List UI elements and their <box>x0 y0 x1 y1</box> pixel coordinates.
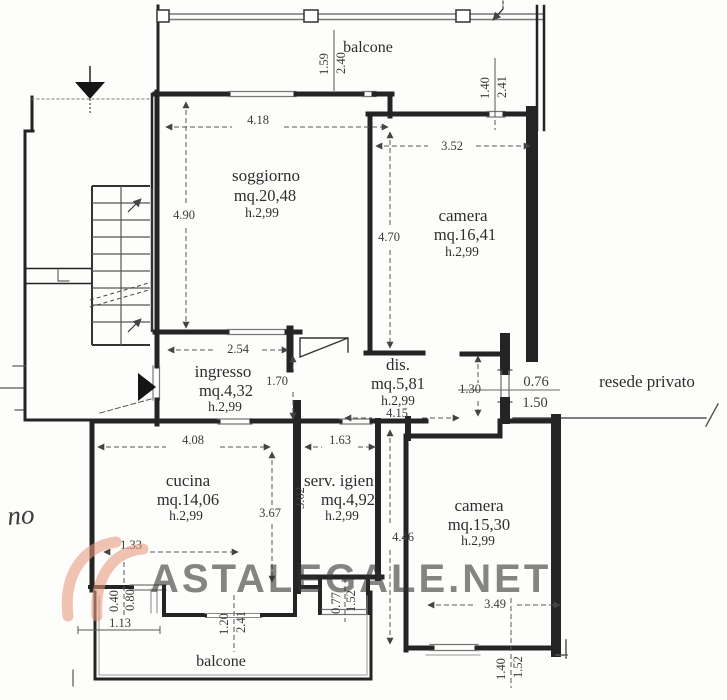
dim-serv-width: 1.63 <box>329 433 351 447</box>
dim-soggiorno-width: 4.18 <box>247 113 269 127</box>
margin-note: no <box>6 499 35 531</box>
dim-fin-camera-sud-depth: 1.52 <box>511 656 525 678</box>
resede-privato-label: resede privato <box>599 372 695 391</box>
dim-finestra-ne-depth: 2.41 <box>495 76 509 98</box>
room-label-camera-nord: camera <box>438 206 488 225</box>
watermark: ASTALEGALE.NET <box>67 542 551 616</box>
balcone-sud-label: balcone <box>196 653 246 670</box>
room-area-cucina: mq.14,06 <box>157 490 219 509</box>
room-label-camera-sud: camera <box>454 496 504 515</box>
north-arrow-icon <box>75 66 105 113</box>
dim-finestra-ne-width: 1.40 <box>478 77 492 99</box>
staircase <box>90 186 152 345</box>
dim-porta-balcone-width: 1.20 <box>217 613 231 635</box>
dim-fin-cucina-depth: 0.80 <box>123 589 137 611</box>
room-label-cucina: cucina <box>166 471 211 490</box>
dim-camera-nord-depth: 4.70 <box>378 230 400 244</box>
balcone-top-label: balcone <box>343 39 393 56</box>
room-area-dis: mq.5,81 <box>371 374 425 393</box>
dim-camera-sud-depth: 4.46 <box>392 530 414 544</box>
room-label-serv-igien: serv. igien. <box>304 471 378 490</box>
dim-porta-resede-depth: 1.50 <box>522 395 547 411</box>
dim-serv-depth: 3.02 <box>293 487 307 509</box>
dim-ingresso-width: 2.54 <box>227 342 250 356</box>
room-label-dis: dis. <box>386 355 410 374</box>
room-label-ingresso: ingresso <box>195 362 252 381</box>
room-area-soggiorno: mq.20,48 <box>234 186 296 205</box>
room-height-camera-nord: h.2,99 <box>445 244 479 259</box>
dim-porta-resede-width: 0.76 <box>523 374 548 390</box>
room-label-soggiorno: soggiorno <box>232 166 300 185</box>
dim-balcone-top-width: 1.59 <box>317 53 331 75</box>
room-height-soggiorno: h.2,99 <box>245 205 279 220</box>
room-area-serv-igien: mq.4,92 <box>321 490 375 509</box>
watermark-text: ASTALEGALE.NET <box>150 557 551 601</box>
dim-soggiorno-depth: 4.90 <box>173 208 195 222</box>
room-height-camera-sud: h.2,99 <box>461 533 495 548</box>
room-area-camera-sud: mq.15,30 <box>448 515 510 534</box>
floor-plan-svg: balcone balcone resede privato soggiorno… <box>0 0 727 700</box>
dim-passage-depth: 1.30 <box>459 382 481 396</box>
room-area-camera-nord: mq.16,41 <box>434 225 496 244</box>
room-height-serv-igien: h.2,99 <box>325 508 359 523</box>
dim-cucina-width: 4.08 <box>182 433 204 447</box>
dim-dis-length: 4.15 <box>386 406 408 420</box>
dim-fin-cucina-width: 0.40 <box>107 590 121 612</box>
dim-fin-camera-sud-width: 1.40 <box>494 658 508 680</box>
dim-davanzale: 1.13 <box>109 616 131 630</box>
dim-ingresso-depth: 1.70 <box>266 374 288 388</box>
room-height-cucina: h.2,99 <box>169 508 203 523</box>
room-height-ingresso: h.2,99 <box>208 399 242 414</box>
dim-balcone-top-depth: 2.40 <box>334 52 348 74</box>
floor-plan-scan: balcone balcone resede privato soggiorno… <box>0 0 727 700</box>
dim-porta-balcone-depth: 2.41 <box>234 611 248 633</box>
dim-cucina-depth: 3.67 <box>259 506 281 520</box>
dim-camera-nord-width: 3.52 <box>441 139 463 153</box>
room-area-ingresso: mq.4,32 <box>199 381 253 400</box>
